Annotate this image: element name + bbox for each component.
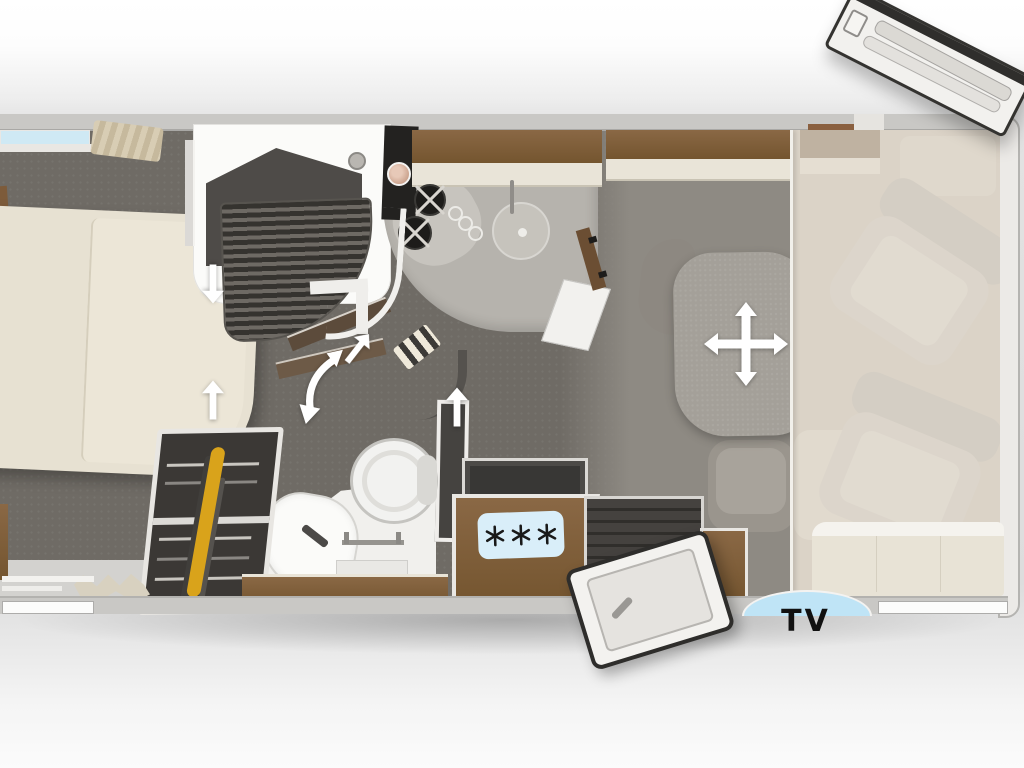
overhead-cabinet-1-shelf bbox=[412, 163, 602, 187]
tv-label: TV bbox=[756, 604, 856, 644]
toilet-lid bbox=[417, 455, 437, 505]
door-swing-arrow-icon bbox=[294, 348, 352, 424]
shower-head-icon bbox=[348, 152, 366, 170]
hob-knob-3 bbox=[468, 226, 483, 241]
four-way-move-arrow-icon bbox=[702, 300, 790, 388]
cabinet-edge-left bbox=[0, 504, 8, 580]
dinette-seat-bottom bbox=[708, 440, 796, 532]
door-handle bbox=[842, 9, 869, 39]
seat-backrest bbox=[873, 171, 1000, 291]
cab-seat-front bbox=[816, 171, 1000, 378]
toilet bbox=[350, 438, 438, 524]
up-arrow-icon bbox=[202, 376, 224, 424]
entry-door-panel bbox=[585, 547, 714, 652]
sink-drain bbox=[518, 228, 527, 237]
seat-cushion bbox=[716, 448, 786, 514]
bench-top-edge bbox=[812, 522, 1004, 536]
seat-cushion bbox=[821, 207, 998, 374]
up-arrow-icon-2 bbox=[446, 384, 468, 430]
seat-backrest bbox=[847, 366, 1000, 467]
overhead-cabinet-2 bbox=[606, 130, 800, 159]
fridge-snowflake-badge bbox=[477, 511, 565, 560]
sink-tap bbox=[510, 180, 514, 214]
snowflake-icon bbox=[510, 524, 533, 547]
towel-rail-post bbox=[344, 532, 349, 544]
bench-seam bbox=[940, 536, 941, 592]
floor-trim-2 bbox=[2, 586, 62, 591]
snowflake-icon bbox=[536, 523, 559, 546]
overhead-cabinet-1 bbox=[412, 130, 602, 163]
overhead-cabinet-3 bbox=[800, 130, 880, 158]
hob-burner-1 bbox=[414, 184, 446, 216]
floorplan-canvas: TV bbox=[0, 0, 1024, 768]
shower-partition-wall bbox=[185, 140, 195, 246]
cab-dashboard bbox=[900, 136, 996, 196]
window-bottom-2 bbox=[878, 601, 1008, 614]
utility-knob bbox=[387, 162, 411, 186]
down-arrow-icon bbox=[202, 260, 224, 308]
overhead-cabinet-3-shelf bbox=[800, 158, 880, 174]
door-opening bbox=[854, 114, 884, 130]
overhead-cabinet-2-shelf bbox=[606, 159, 800, 181]
towel-rail-post-2 bbox=[396, 532, 401, 544]
bench-sofa bbox=[812, 522, 1004, 596]
towel-rail bbox=[342, 540, 404, 545]
window-bottom-1 bbox=[2, 601, 94, 614]
snowflake-icon bbox=[484, 525, 507, 548]
floor-trim-1 bbox=[2, 576, 94, 582]
bench-seam bbox=[876, 536, 877, 592]
